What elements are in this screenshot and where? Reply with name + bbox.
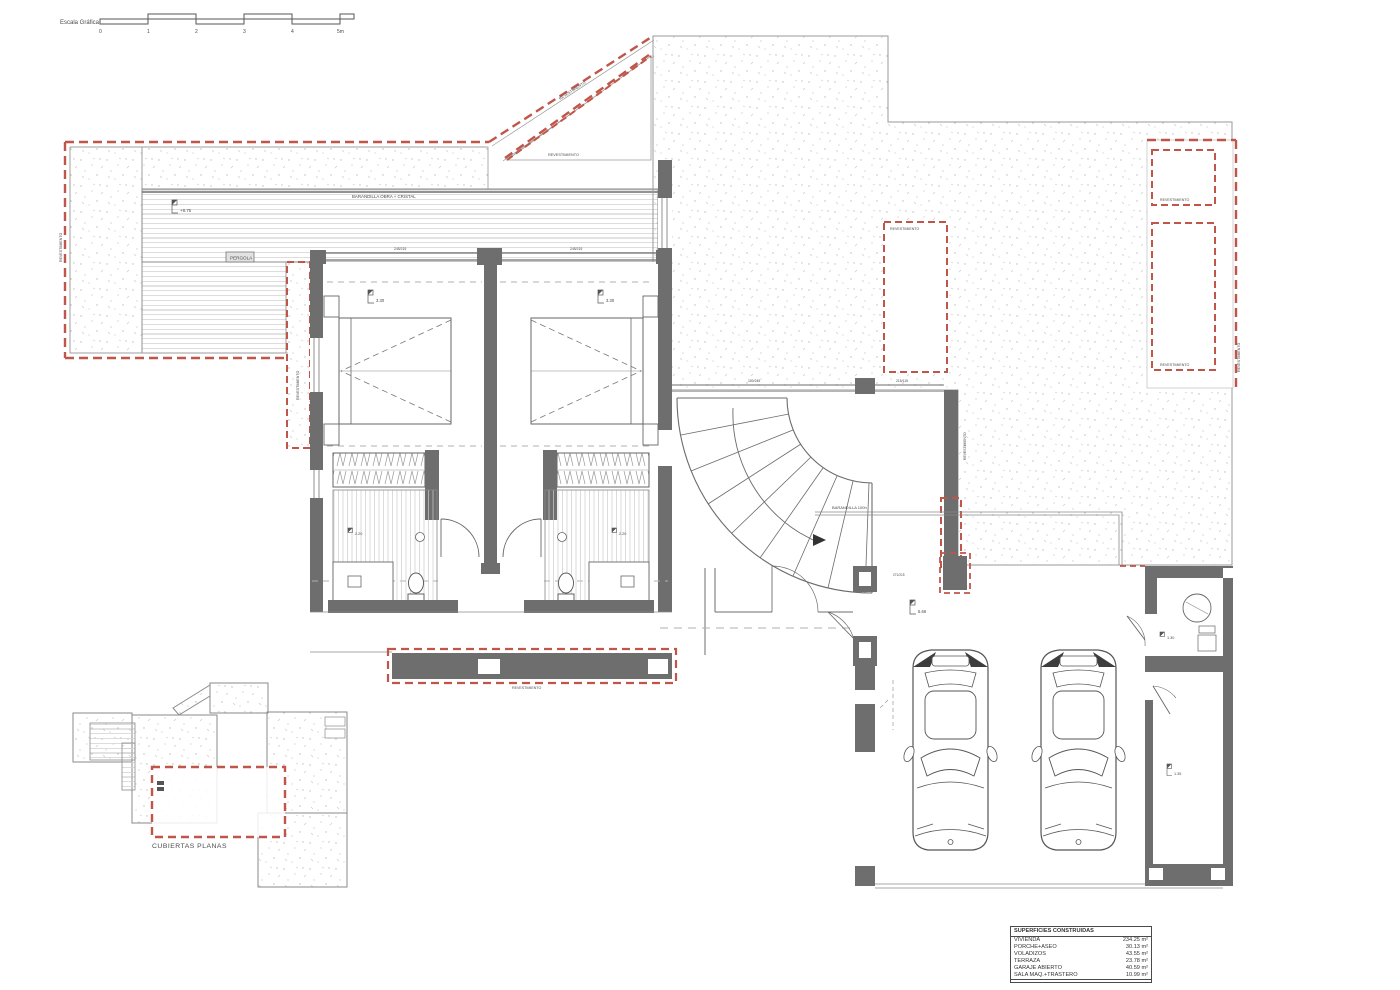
table-row: GARAJE ABIERTO40.59 m²: [1011, 965, 1151, 972]
dim-hall-2: 215/115: [896, 379, 908, 383]
label-revestimiento-rect1: REVESTIMIENTO: [1160, 198, 1189, 202]
table-row: VOLADIZOS43.55 m²: [1011, 951, 1151, 958]
entry-corridor: [660, 566, 855, 655]
scale-tick-5: 5m: [337, 29, 344, 35]
svg-text:3.30: 3.30: [376, 298, 385, 303]
label-revestimiento-bottom: REVESTIMIENTO: [512, 686, 541, 690]
table-row: SALA MAQ.+TRASTERO10.99 m²: [1011, 972, 1151, 980]
label-revestimiento-left-edge: REVESTIMIENTO: [59, 233, 63, 262]
car-1: [902, 650, 999, 850]
label-pergola: PERGOLA: [230, 256, 253, 261]
garage: 271/215 5.66: [853, 553, 1223, 888]
svg-text:2.20: 2.20: [619, 532, 626, 536]
level-marker-garage: 5.66: [910, 600, 927, 614]
floor-plan-page: Escala Gráfica 0 1 2 3 4 5m: [0, 0, 1400, 990]
bottom-clad-wall: REVESTIMIENTO: [310, 612, 676, 690]
svg-text:5.66: 5.66: [918, 609, 927, 614]
machine-room: 1.30: [1127, 566, 1233, 886]
bed-right: [531, 296, 658, 445]
svg-text:3.30: 3.30: [606, 298, 615, 303]
scale-tick-4: 4: [291, 29, 294, 35]
scale-tick-0: 0: [99, 29, 102, 35]
storage-room: 1.35: [1145, 686, 1233, 886]
bed-left: [324, 296, 451, 445]
dim-window-left: 245/215: [394, 247, 406, 251]
label-barandilla-stairs: BARANDILLA 100h: [832, 505, 867, 510]
svg-text:1.35: 1.35: [1174, 772, 1181, 776]
dim-entry: 271/215: [893, 573, 905, 577]
scale-bar: Escala Gráfica 0 1 2 3 4 5m: [60, 14, 354, 35]
label-revestimiento-strip: REVESTIMIENTO: [296, 371, 300, 400]
table-row: TERRAZA23.78 m²: [1011, 958, 1151, 965]
svg-text:+8.75: +8.75: [180, 208, 192, 213]
dim-hall-1: 150/245: [748, 379, 760, 383]
scale-bar-label: Escala Gráfica: [60, 20, 100, 26]
floor-plan-drawing: Escala Gráfica 0 1 2 3 4 5m: [0, 0, 1400, 990]
areas-table-title: SUPERFICIES CONSTRUIDAS: [1011, 928, 1151, 937]
svg-text:2.20: 2.20: [355, 532, 362, 536]
areas-table: SUPERFICIES CONSTRUIDAS VIVIENDA234.25 m…: [1010, 926, 1152, 983]
table-row: VIVIENDA234.25 m²: [1011, 937, 1151, 944]
level-marker-machine: 1.30: [1160, 632, 1174, 640]
dim-window-right: 245/215: [570, 247, 582, 251]
label-revestimiento-rect2: REVESTIMIENTO: [1160, 363, 1189, 367]
label-revestimiento-hall: REVESTIMIENTO: [963, 432, 967, 460]
scale-tick-1: 1: [147, 29, 150, 35]
label-revestimiento-right-edge: REVESTIMIENTO: [1237, 343, 1241, 372]
svg-text:1.30: 1.30: [1167, 636, 1174, 640]
label-revestimiento-band: REVESTIMIENTO: [558, 81, 586, 101]
car-2: [1030, 650, 1127, 850]
key-plan: CUBIERTAS PLANAS: [73, 683, 347, 887]
scale-tick-2: 2: [195, 29, 198, 35]
label-revestimiento-triangle: REVESTIMIENTO: [548, 153, 579, 157]
table-row: PORCHE+ASEO30.13 m²: [1011, 944, 1151, 951]
key-plan-label: CUBIERTAS PLANAS: [152, 843, 227, 850]
label-revestimiento-mid: REVESTIMIENTO: [890, 227, 919, 231]
label-barandilla-obra: BARANDILLA OBRA + CRISTAL: [352, 194, 416, 199]
level-marker-storage: 1.35: [1167, 764, 1181, 776]
scale-tick-3: 3: [243, 29, 246, 35]
